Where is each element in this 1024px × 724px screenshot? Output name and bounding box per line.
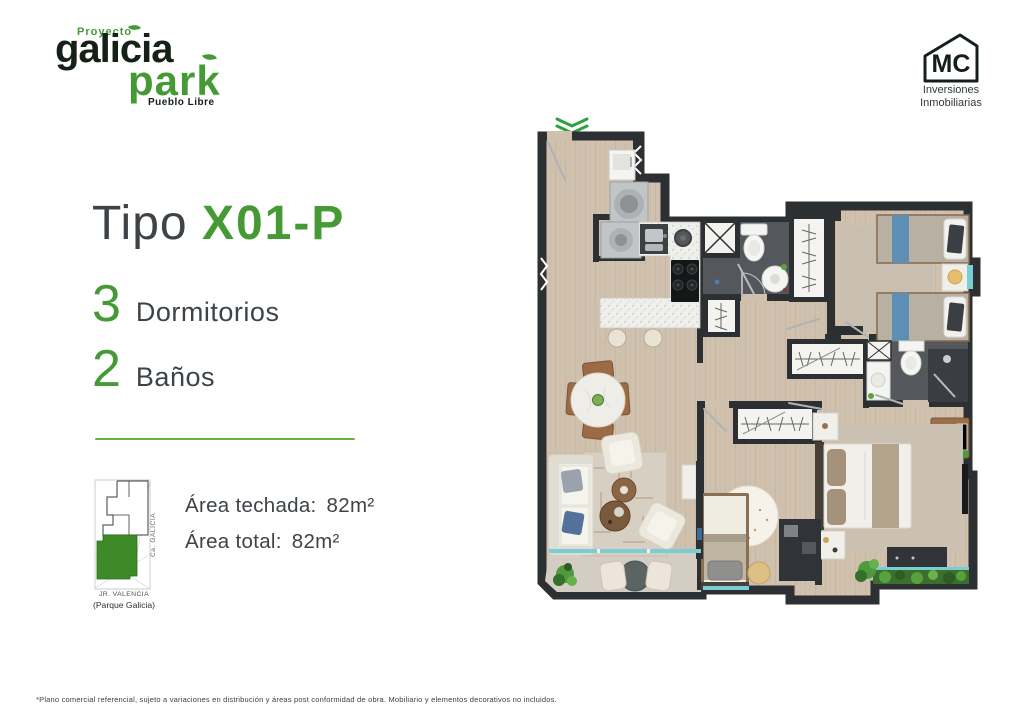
linen-closet: [700, 218, 740, 258]
pouf: [748, 562, 770, 584]
stool: [608, 329, 626, 347]
balcony-chair: [645, 560, 673, 591]
street-label-front: JR. VALENCIA: [86, 591, 162, 598]
area-total-label: Área total:: [185, 530, 282, 553]
coffee-table: [600, 501, 630, 531]
entrance-chevron-icon: [557, 119, 587, 133]
bedrooms-count: 3: [92, 278, 121, 330]
bathrooms-label: Baños: [136, 362, 215, 393]
street-label-side: Ca. GALICIA: [150, 507, 157, 557]
area-roofed-label: Área techada:: [185, 494, 317, 517]
area-total-value: 82m²: [292, 530, 340, 553]
armchair: [600, 431, 644, 475]
green-divider: [95, 438, 355, 440]
unit-location-highlight: [97, 535, 137, 579]
developer-line2: Inmobiliarias: [905, 97, 997, 110]
unit-type-label: Tipo: [92, 197, 188, 250]
balcony-chair: [599, 560, 627, 591]
unit-type-title: Tipo X01-P: [92, 196, 345, 251]
project-logo: Proyecto galicia park Pueblo Libre: [55, 26, 255, 104]
developer-initials: MC: [932, 50, 971, 78]
hall-small-closet: [703, 295, 740, 337]
bedroom-twin: [829, 215, 973, 341]
hall-closet: [787, 339, 868, 379]
feature-bedrooms: 3 Dormitorios: [92, 278, 279, 330]
location-minimap: Ca. GALICIA JR. VALENCIA (Parque Galicia…: [93, 477, 183, 617]
area-info: Área techada:82m² Área total:82m²: [185, 494, 374, 566]
tv: [962, 464, 968, 514]
area-roofed: Área techada:82m²: [185, 494, 374, 518]
sofa: [549, 455, 593, 555]
twin-bed: [877, 293, 969, 341]
project-name-bottom: park: [128, 60, 221, 102]
twin-bed: [877, 215, 969, 263]
headboard: [815, 442, 824, 530]
kids-closet: [733, 404, 817, 444]
developer-logo: MC Inversiones Inmobiliarias: [905, 30, 997, 109]
area-roofed-value: 82m²: [327, 494, 375, 517]
developer-line1: Inversiones: [905, 84, 997, 97]
feature-bathrooms: 2 Baños: [92, 343, 215, 395]
area-total: Área total:82m²: [185, 530, 374, 554]
unit-type-code: X01-P: [202, 197, 345, 250]
floorplan-drawing: [535, 112, 990, 617]
bathrooms-count: 2: [92, 343, 121, 395]
media-unit: [682, 465, 696, 499]
disclaimer-text: *Plano comercial referencial, sujeto a v…: [36, 695, 557, 704]
stool: [644, 329, 662, 347]
lamp: [948, 270, 962, 284]
minimap-drawing: [93, 477, 169, 595]
project-district: Pueblo Libre: [148, 97, 215, 108]
brochure-page: Proyecto galicia park Pueblo Libre MC In…: [0, 0, 1024, 724]
floorplan: [535, 112, 990, 617]
nightstand: [818, 531, 845, 559]
bedrooms-label: Dormitorios: [136, 297, 280, 328]
street-label-note: (Parque Galicia): [81, 600, 167, 610]
wardrobe-closet: [789, 214, 833, 302]
master-bedroom: [813, 413, 969, 584]
house-outline-icon: MC: [918, 30, 984, 84]
